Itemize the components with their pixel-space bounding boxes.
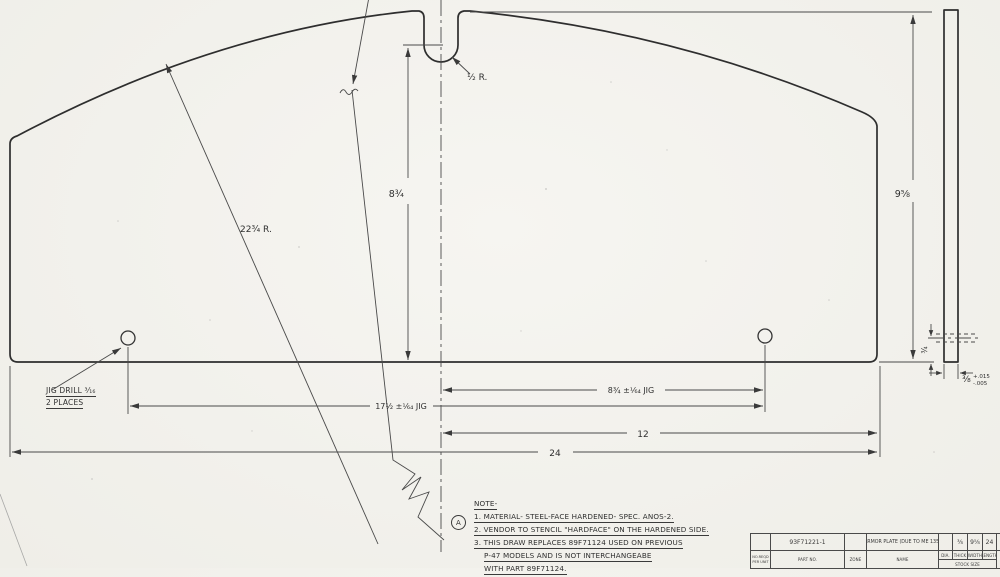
blueprint-page: { "drawing": { "dims": { "height_to_notc… — [0, 0, 1000, 568]
note-line-3: 3. THIS DRAW REPLACES 89F71124 USED ON P… — [474, 538, 683, 549]
stock-length-value: 24 — [983, 534, 997, 551]
note-flag-letter: A — [456, 519, 461, 527]
surface-squiggle — [340, 89, 358, 94]
note-a-zigzag-leader — [352, 90, 444, 540]
stock-length-label: LENGTH — [983, 551, 997, 560]
dim-thickness: ⅜ — [962, 375, 971, 385]
dim-plate-length: 24 — [549, 449, 561, 459]
stock-width-value: 9⅝ — [968, 534, 983, 551]
title-block: 93F71221-1 ARMOR PLATE (DUE TO ME 135) ⅜… — [750, 533, 1000, 569]
part-number-label: PART NO. — [771, 551, 845, 569]
dim-center-to-edge: 12 — [637, 430, 648, 440]
dim-arc-radius: 22¾ R. — [240, 225, 272, 235]
part-number-value: 93F71221-1 — [771, 534, 845, 551]
dim-hole-to-hole: 17½ ±¹⁄₆₄ JIG — [375, 402, 427, 411]
jig-hole-left — [121, 331, 135, 345]
dim-plate-height: 9⅝ — [895, 189, 910, 200]
req-value-cell — [751, 534, 771, 551]
dim-thickness-plus: +.015 — [973, 374, 990, 380]
jig-hole-right — [758, 329, 772, 343]
stock-thick-label: THICK — [953, 551, 968, 560]
notch-radius-leader — [452, 57, 470, 74]
scan-speckles — [91, 81, 935, 480]
note-a-top-leader — [353, 0, 369, 84]
dim-height-to-notch: 8¾ — [389, 189, 404, 200]
stock-dia-value — [939, 534, 953, 551]
note-line-4: P-47 MODELS AND IS NOT INTERCHANGEABE — [484, 551, 652, 562]
zone-value — [845, 534, 867, 551]
note-line-2: 2. VENDOR TO STENCIL "HARDFACE" ON THE H… — [474, 525, 709, 536]
req-label-line2: PER UNIT — [752, 560, 768, 564]
dim-notch-radius: ½ R. — [467, 73, 487, 83]
jig-drill-note-line1: JIG DRILL ³⁄₁₆ — [46, 386, 96, 397]
dim-center-to-hole: 8¾ ±¹⁄₆₄ JIG — [608, 386, 655, 395]
part-name-value: ARMOR PLATE (DUE TO ME 135) — [867, 534, 939, 551]
note-line-5: WITH PART 89F71124. — [484, 564, 567, 575]
note-flag-a: A — [451, 515, 466, 530]
stock-dia-label: DIA. — [939, 551, 953, 560]
note-lines: NOTE- 1. MATERIAL- STEEL-FACE HARDENED- … — [474, 499, 709, 575]
part-name-label: NAME — [867, 551, 939, 569]
jig-drill-note: JIG DRILL ³⁄₁₆ 2 PLACES — [46, 386, 96, 410]
jig-drill-leader — [52, 348, 121, 390]
drawing-canvas: 8¾ 9⅝ 22¾ R. ½ R. 8¾ ±¹⁄₆₄ JIG 17½ ±¹⁄₆₄… — [0, 0, 1000, 568]
dim-hole-to-bottom: ¾ — [920, 346, 929, 354]
arc-radius-leader — [166, 64, 378, 544]
notes-block: A NOTE- 1. MATERIAL- STEEL-FACE HARDENED… — [448, 499, 709, 577]
plate-outline — [10, 11, 877, 362]
zone-label: ZONE — [845, 551, 867, 569]
sheet-corner-mark — [0, 494, 27, 566]
stock-thick-value: ⅜ — [953, 534, 968, 551]
req-label-cell: NO.REQD PER UNIT — [751, 551, 771, 569]
stock-width-label: WIDTH — [968, 551, 983, 560]
drawing-sheet: 8¾ 9⅝ 22¾ R. ½ R. 8¾ ±¹⁄₆₄ JIG 17½ ±¹⁄₆₄… — [0, 0, 1000, 568]
leader-lines — [52, 0, 470, 544]
edge-view — [928, 10, 980, 362]
jig-drill-note-line2: 2 PLACES — [46, 398, 83, 409]
notes-heading: NOTE- — [474, 499, 497, 510]
note-line-1: 1. MATERIAL- STEEL-FACE HARDENED- SPEC. … — [474, 512, 674, 523]
dim-thickness-minus: -.005 — [973, 381, 988, 387]
dimension-lines — [12, 15, 973, 452]
